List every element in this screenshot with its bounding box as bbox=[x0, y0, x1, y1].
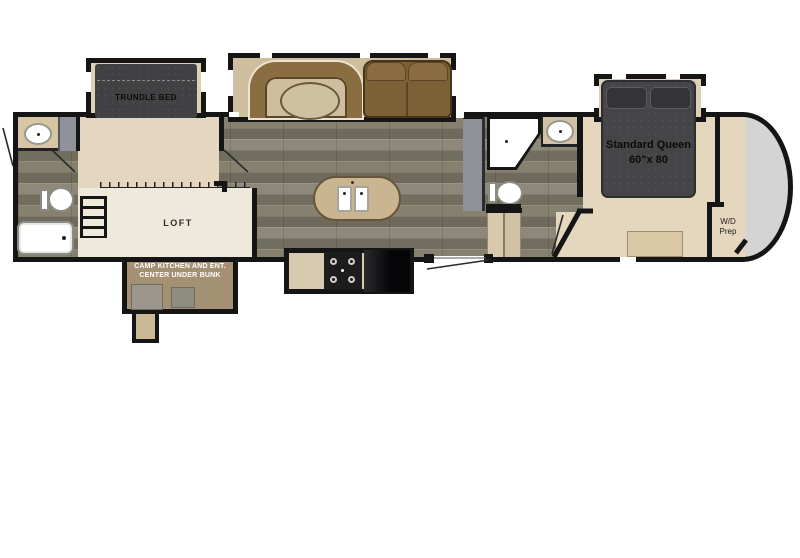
rv-floorplan: TRUNDLE BED Standard Queen bbox=[0, 0, 800, 558]
wd-closet-angled-wall bbox=[736, 240, 746, 253]
rear-exterior-line bbox=[3, 128, 13, 166]
bath1-door-swing bbox=[52, 150, 75, 172]
entry-door-swing bbox=[427, 260, 489, 269]
loft-label: LOFT bbox=[148, 218, 208, 228]
annotation-lines bbox=[0, 0, 800, 558]
bunk-door-swing bbox=[224, 150, 248, 172]
